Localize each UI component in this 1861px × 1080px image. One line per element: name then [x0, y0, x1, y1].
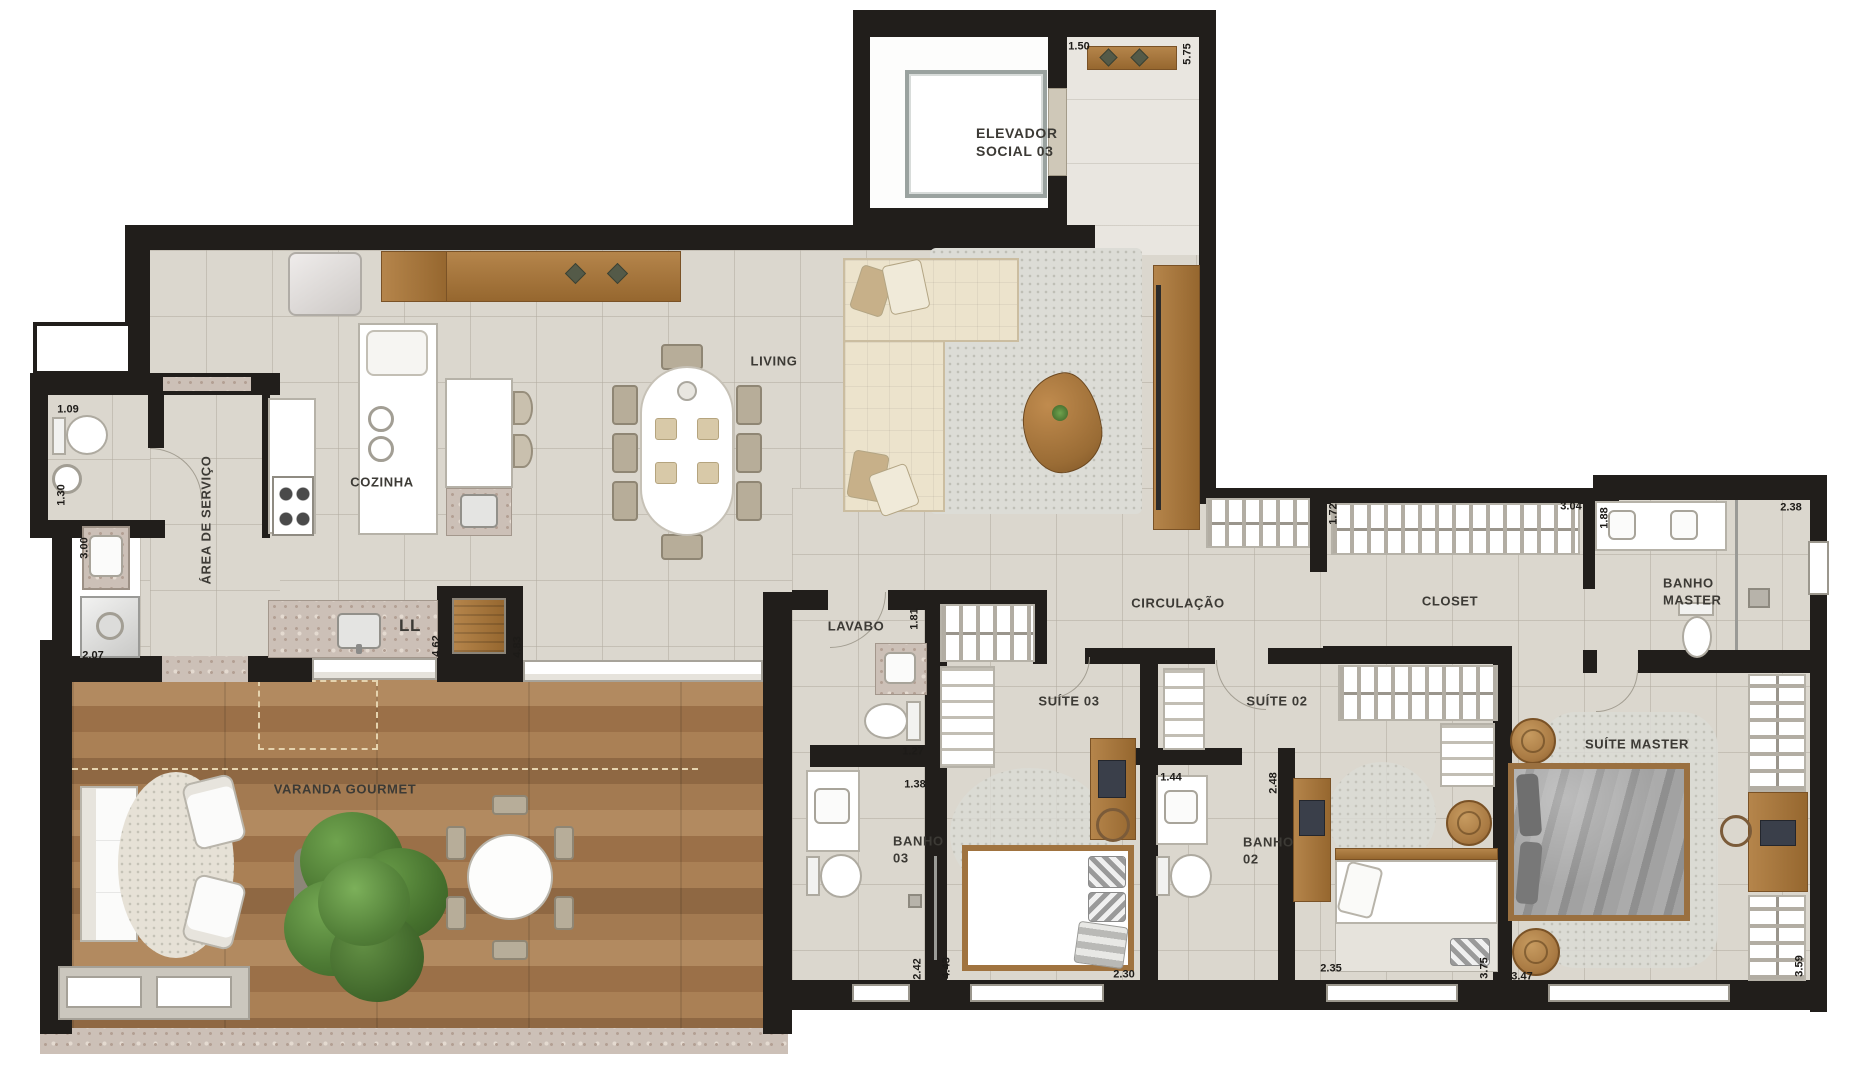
dim-banho03-depth: 2.42: [913, 958, 924, 979]
wall: [763, 592, 792, 1034]
banho03-toilet-bowl: [820, 854, 862, 898]
room-label-living: LIVING: [751, 354, 798, 371]
room-label-banho02-line2: 02: [1243, 851, 1259, 868]
wall: [1323, 646, 1495, 664]
dining-chair: [736, 385, 762, 425]
wall: [1310, 500, 1327, 572]
suite03-pillow: [1088, 856, 1126, 888]
suite02-side-unit: [1440, 723, 1495, 787]
varanda-dining-chair: [554, 826, 574, 860]
suite03-chair: [1096, 808, 1130, 842]
dining-chair: [612, 481, 638, 521]
banho-master-basin: [1670, 510, 1698, 540]
placemat: [655, 418, 677, 440]
room-label-area-servico: ÁREA DE SERVIÇO: [199, 456, 216, 585]
room-label-banho03-line1: BANHO: [893, 834, 944, 851]
dining-chair: [612, 433, 638, 473]
cooktop: [272, 476, 314, 536]
dim-cozinha-depth-2: 4.83: [513, 636, 524, 657]
room-label-ll: LL: [399, 615, 421, 637]
room-label-cozinha: COZINHA: [350, 475, 413, 492]
master-duvet: [1514, 769, 1684, 915]
master-chair: [1720, 815, 1752, 847]
shaft-duct: [33, 322, 132, 375]
table-centerpiece: [677, 381, 697, 401]
tv-screen: [1156, 285, 1161, 510]
placemat: [697, 418, 719, 440]
suite02-pouf: [1446, 800, 1492, 846]
room-label-banho03-line2: 03: [893, 850, 909, 867]
projection-dashed-rect: [258, 680, 378, 750]
lavabo-toilet-tank: [906, 701, 921, 741]
suite02-shelf-pocket: [1163, 668, 1205, 750]
tree-foliage: [318, 858, 410, 946]
wall: [853, 10, 1213, 37]
lavabo-basin: [884, 652, 916, 684]
wall: [853, 10, 870, 227]
dining-chair: [736, 481, 762, 521]
floor-plan: ELEVADOR SOCIAL 03: [0, 0, 1861, 1080]
banho03-toilet-tank: [806, 856, 820, 896]
dim-suite02-depth: 3.75: [1480, 957, 1491, 978]
banho03-basin: [814, 788, 850, 824]
suite02-wardrobe: [1338, 665, 1498, 721]
island-sink: [460, 494, 498, 528]
dim-banho02-width: 1.44: [1160, 773, 1181, 784]
wall: [1638, 650, 1812, 673]
wall: [1033, 590, 1047, 664]
wall: [1583, 495, 1595, 589]
dim-banho-master-depth: 1.88: [1600, 507, 1611, 528]
dim-banho03-width: 1.38: [904, 780, 925, 791]
varanda-bench: [156, 976, 232, 1008]
banho02-toilet-tank: [1156, 856, 1170, 896]
faucet-icon: [356, 644, 362, 654]
wall: [1199, 10, 1216, 504]
dim-suite02-width: 2.35: [1320, 964, 1341, 975]
room-label-closet: CLOSET: [1422, 594, 1478, 611]
varanda-round-table: [467, 834, 553, 920]
dim-wc-depth: 1.30: [57, 484, 68, 505]
dim-closet-width: 3.04: [1560, 502, 1581, 513]
room-label-circulacao: CIRCULAÇÃO: [1131, 596, 1224, 613]
dim-master-depth: 3.59: [1795, 955, 1806, 976]
dim-banho-master-width: 2.38: [1780, 503, 1801, 514]
dining-chair: [612, 385, 638, 425]
dim-wc-width: 1.09: [57, 405, 78, 416]
dim-lavabo-width: 1.27: [902, 747, 923, 758]
dim-master-width: 3.47: [1511, 972, 1532, 983]
washing-machine-door-icon: [96, 612, 124, 640]
master-pillow: [1516, 773, 1542, 836]
shower-head-icon: [908, 894, 922, 908]
varanda-dining-chair: [446, 896, 466, 930]
banho02-basin: [1164, 790, 1198, 824]
wall: [888, 590, 930, 610]
wall: [1048, 175, 1067, 218]
banho-master-toilet-bowl: [1682, 616, 1712, 658]
kitchen-sideboard-panel: [381, 251, 447, 302]
wc-toilet-bowl: [66, 415, 108, 455]
wall: [30, 393, 48, 538]
counter-basin: [368, 406, 394, 432]
banho02-toilet-bowl: [1170, 854, 1212, 898]
window: [1548, 984, 1730, 1002]
shower-glass: [1735, 500, 1738, 650]
master-wardrobe: [1748, 674, 1806, 792]
dim-cozinha-depth: 4.62: [432, 635, 443, 656]
room-label-banho-master-line1: BANHO: [1663, 576, 1714, 593]
dim-lavabo-depth: 1.81: [910, 608, 921, 629]
room-label-suite02: SUÍTE 02: [1246, 694, 1307, 711]
room-label-suite-master: SUÍTE MASTER: [1585, 737, 1689, 754]
varanda-dining-chair: [492, 795, 528, 815]
suite03-laptop: [1098, 760, 1126, 798]
wall: [1583, 650, 1597, 673]
kitchen-tall-cabinet: [452, 598, 506, 654]
coffee-table-plant-icon: [1052, 405, 1068, 421]
room-label-banho-master-line2: MASTER: [1663, 592, 1722, 609]
dim-elevator-hall-width: 1.50: [1068, 42, 1089, 53]
suite02-desk: [1293, 778, 1331, 902]
banho-master-basin: [1608, 510, 1636, 540]
counter-appliance: [366, 330, 428, 376]
fridge: [288, 252, 362, 316]
wall: [52, 656, 162, 682]
room-label-elevador-line2: SOCIAL 03: [976, 142, 1054, 160]
shower-glass: [934, 856, 937, 960]
sliding-door: [312, 658, 437, 680]
projection-dashed-line: [72, 768, 698, 770]
room-label-banho02-line1: BANHO: [1243, 835, 1294, 852]
suite02-headboard: [1335, 848, 1498, 860]
closet-rail: [1331, 503, 1580, 555]
dim-servico-width: 2.07: [82, 651, 103, 662]
suite02-laptop: [1299, 800, 1325, 836]
wall: [1048, 35, 1067, 90]
wall: [148, 393, 164, 448]
varanda-bench: [66, 976, 142, 1008]
wall: [1130, 748, 1242, 765]
varanda-dining-chair: [446, 826, 466, 860]
dim-closet-depth: 1.72: [1329, 503, 1340, 524]
dim-banho02-depth: 2.48: [1269, 772, 1280, 793]
varanda-dining-chair: [492, 940, 528, 960]
counter-basin: [368, 436, 394, 462]
laundry-tank-basin: [89, 535, 123, 577]
dining-chair: [736, 433, 762, 473]
corridor-closet: [1206, 498, 1310, 548]
wall: [792, 590, 828, 610]
wall: [248, 656, 312, 682]
sliding-door: [523, 660, 763, 682]
lavabo-toilet-bowl: [864, 703, 908, 739]
dining-chair: [661, 534, 703, 560]
window: [852, 984, 910, 1002]
wall: [1593, 475, 1827, 500]
placemat: [697, 462, 719, 484]
room-label-varanda: VARANDA GOURMET: [274, 782, 417, 799]
island-stool: [513, 391, 533, 425]
servico-window: [163, 377, 251, 391]
varanda-border-strip: [40, 1028, 788, 1054]
dim-servico-depth: 3.00: [80, 537, 91, 558]
room-label-elevador-line1: ELEVADOR: [976, 124, 1058, 142]
room-label-suite03: SUÍTE 03: [1038, 694, 1099, 711]
room-label-lavabo: LAVABO: [828, 619, 885, 636]
placemat: [655, 462, 677, 484]
dim-suite03-width: 2.30: [1113, 970, 1134, 981]
suite03-wardrobe: [940, 604, 1035, 662]
suite03-shelf-unit: [940, 666, 995, 768]
wc-toilet-tank: [52, 417, 66, 455]
window: [970, 984, 1104, 1002]
master-pouf: [1510, 718, 1556, 764]
dim-suite03-depth: 4.43: [942, 957, 953, 978]
window: [1808, 541, 1829, 595]
dim-elevator-hall-depth: 5.75: [1183, 43, 1194, 64]
master-laptop: [1760, 820, 1796, 846]
shower-head-icon: [1748, 588, 1770, 608]
varanda-dining-chair: [554, 896, 574, 930]
servico-door-sill: [162, 656, 248, 682]
island-stool: [513, 434, 533, 468]
suite03-blanket: [1073, 921, 1128, 970]
master-pouf: [1512, 928, 1560, 976]
suite03-pillow: [1088, 892, 1126, 922]
kitchen-island: [445, 378, 513, 488]
window: [1326, 984, 1458, 1002]
wall: [853, 208, 1067, 230]
